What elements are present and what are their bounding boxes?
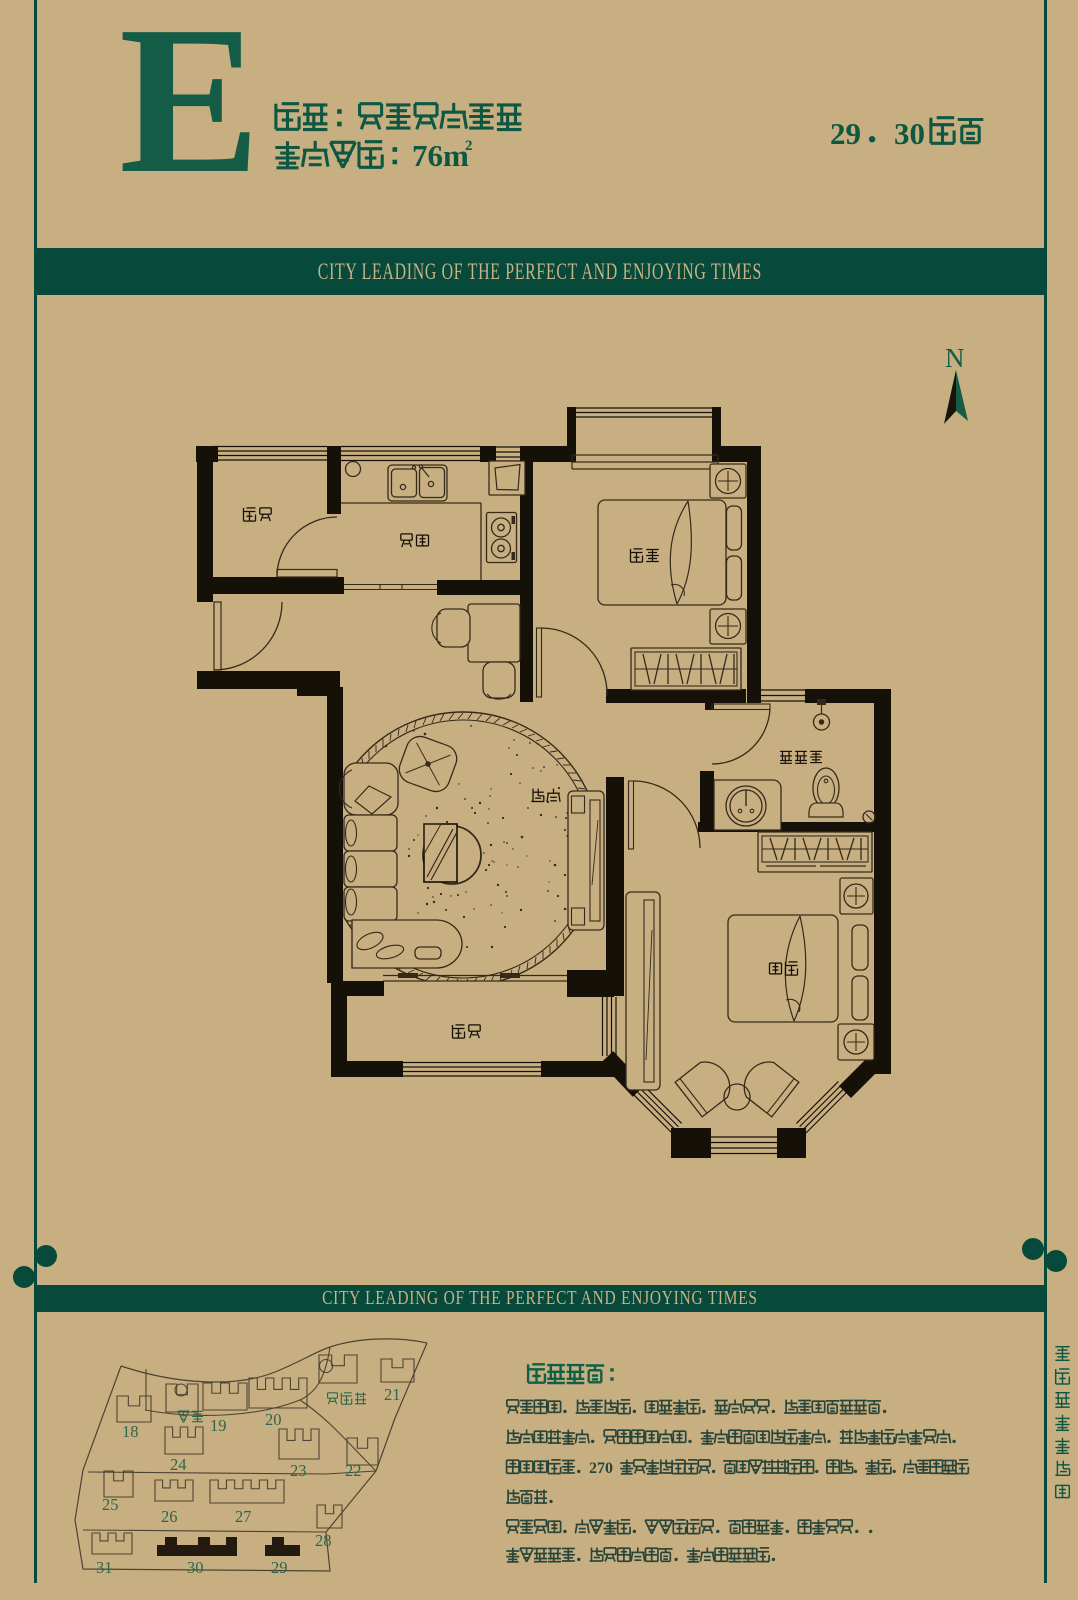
svg-text:30: 30 [894,116,925,151]
svg-text:2: 2 [465,138,473,154]
svg-text:26: 26 [161,1507,178,1526]
svg-text:19: 19 [210,1416,227,1435]
svg-text:28: 28 [315,1531,332,1550]
svg-text:76m: 76m [412,138,469,173]
svg-text:24: 24 [170,1455,187,1474]
svg-text:27: 27 [235,1507,252,1526]
svg-text:N: N [945,343,965,373]
svg-text:21: 21 [384,1385,401,1404]
svg-text:30: 30 [187,1558,204,1577]
svg-text:18: 18 [122,1422,139,1441]
svg-text:29: 29 [271,1558,288,1577]
svg-text:31: 31 [96,1558,113,1577]
svg-text:22: 22 [345,1461,362,1480]
svg-text:270: 270 [589,1460,613,1477]
svg-text:20: 20 [265,1410,282,1429]
svg-text:25: 25 [102,1495,119,1514]
svg-text:23: 23 [290,1461,307,1480]
svg-text:29: 29 [830,116,861,151]
